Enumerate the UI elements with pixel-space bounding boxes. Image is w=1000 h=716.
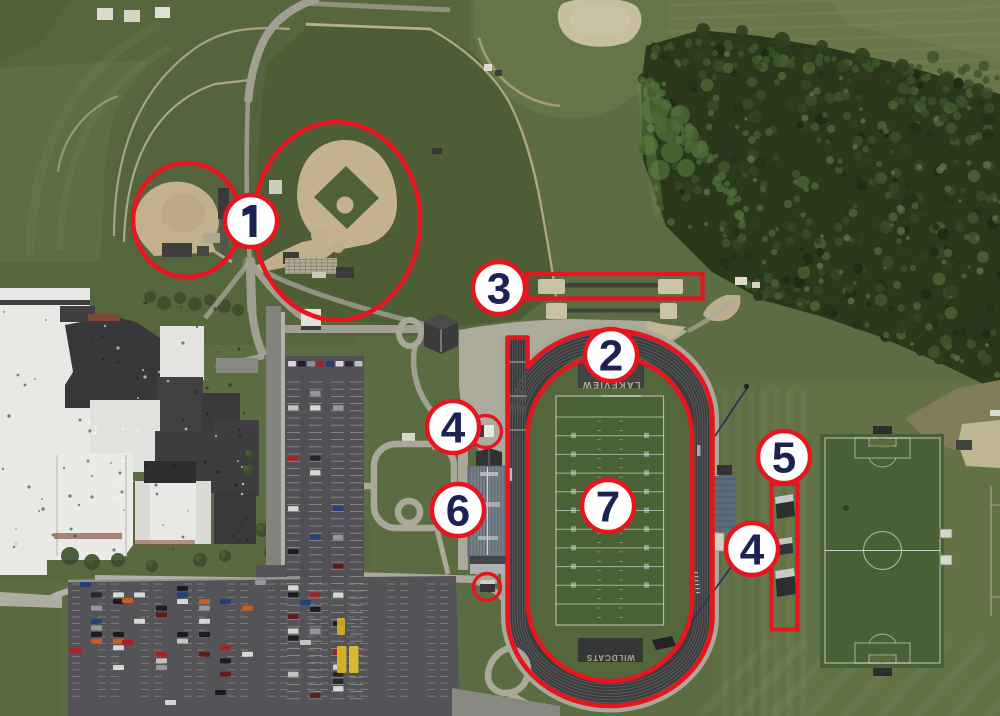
svg-text:4: 4 [441,404,466,453]
svg-text:6: 6 [446,487,470,536]
svg-text:4: 4 [740,526,765,575]
svg-text:3: 3 [487,265,511,314]
svg-text:7: 7 [596,483,620,532]
svg-text:5: 5 [772,434,796,483]
svg-text:2: 2 [599,332,623,381]
